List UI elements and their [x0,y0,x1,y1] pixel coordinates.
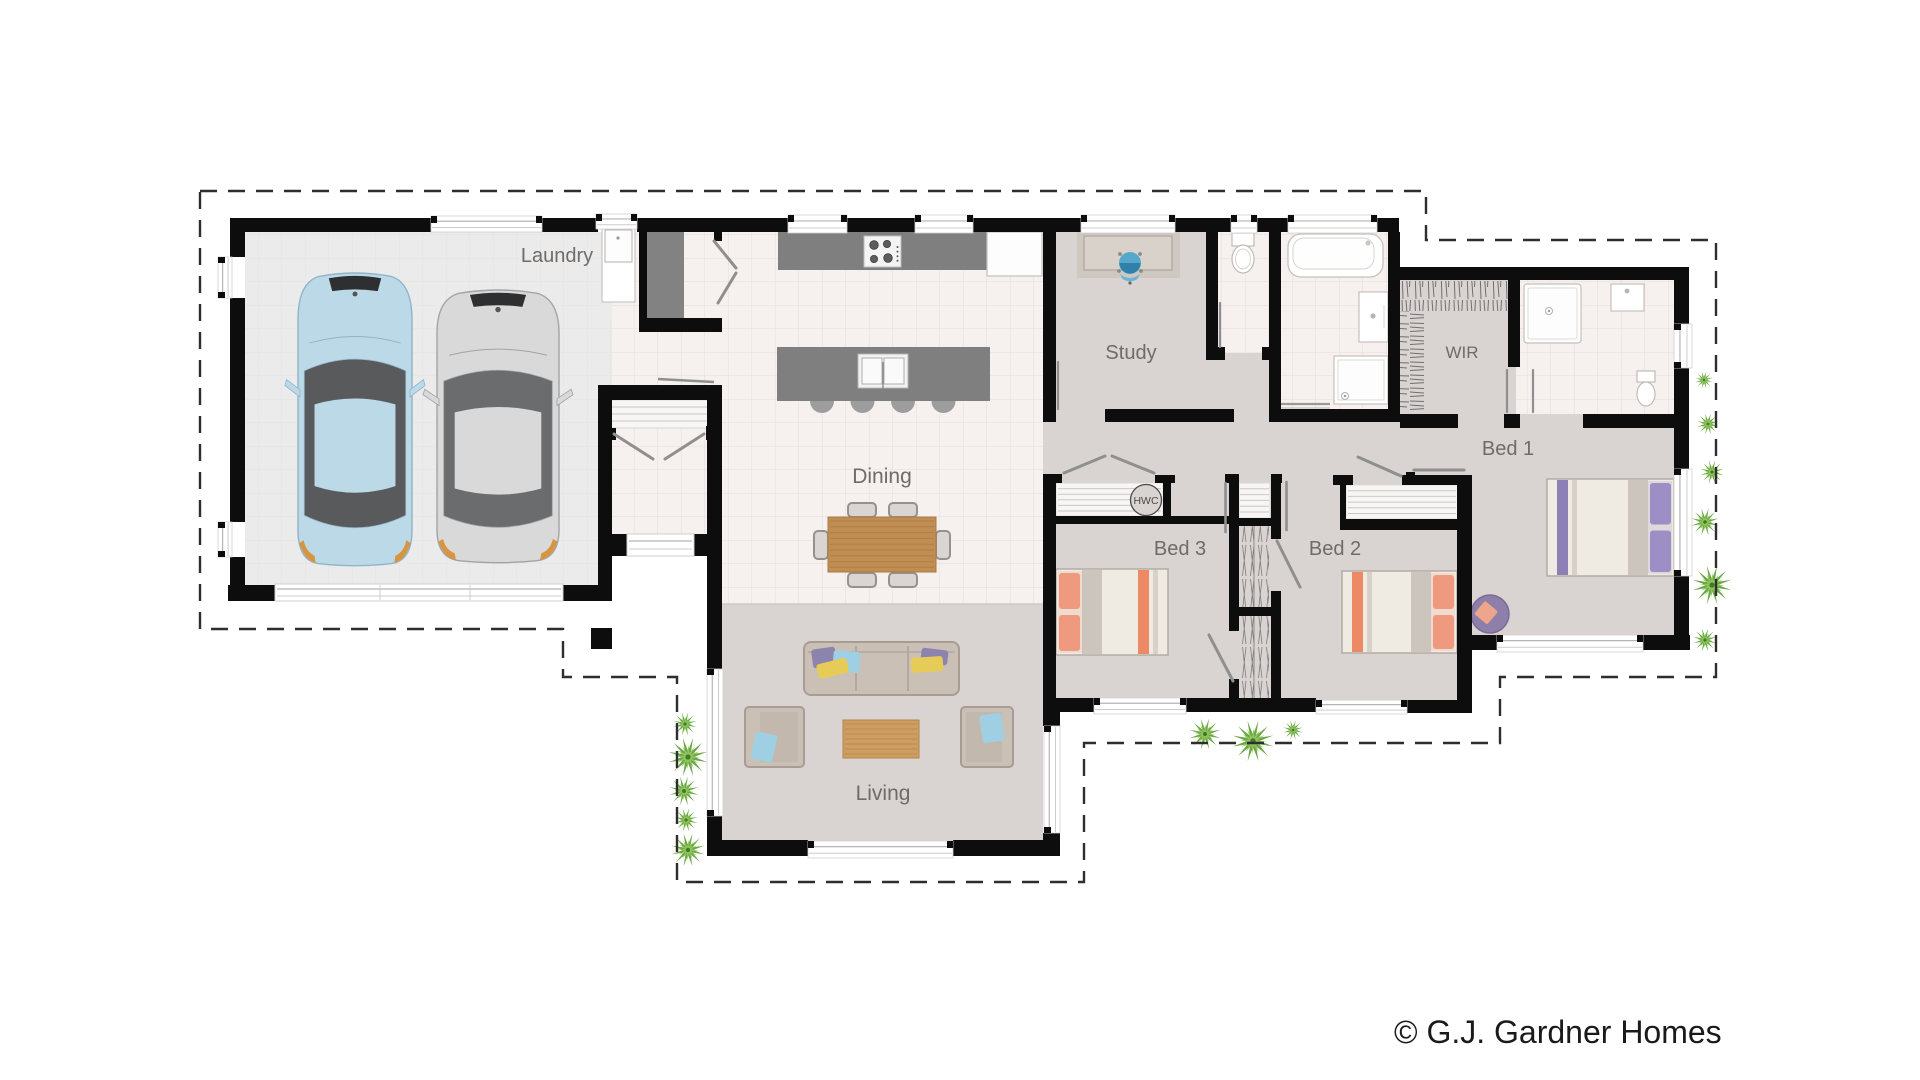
svg-text:Study: Study [1105,342,1156,364]
svg-text:HWC: HWC [1133,495,1158,507]
svg-text:Dining: Dining [852,465,912,488]
svg-text:© G.J. Gardner Homes: © G.J. Gardner Homes [1394,1014,1722,1050]
svg-text:Bed 2: Bed 2 [1309,538,1361,560]
svg-text:Laundry: Laundry [521,245,593,267]
svg-text:Bed 1: Bed 1 [1482,438,1534,460]
svg-text:WIR: WIR [1445,343,1478,362]
svg-text:Living: Living [856,782,911,805]
svg-text:Bed 3: Bed 3 [1154,538,1206,560]
